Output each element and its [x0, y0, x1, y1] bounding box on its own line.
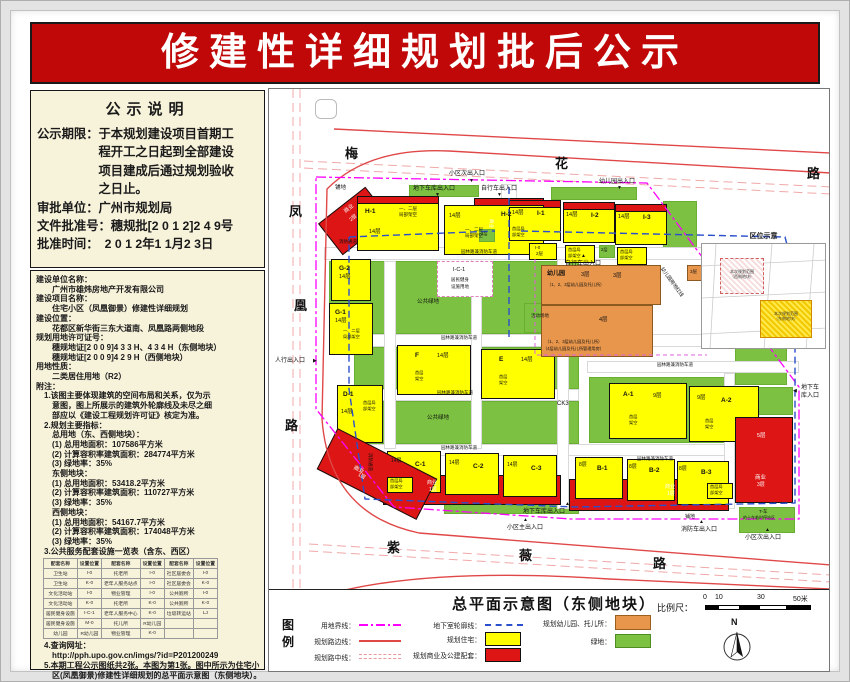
map-label: 公共绿地 — [417, 299, 439, 305]
map-shape-green — [663, 201, 697, 253]
text-line: (2) 计算容积率建筑面积：174048平方米 — [36, 527, 259, 537]
inset-title: 区位示意 — [701, 231, 826, 241]
map-label: F — [415, 352, 419, 359]
legend-item-road-center: 规划路中线： — [287, 648, 401, 662]
map-label: 4层 — [599, 317, 608, 323]
compass-north-label: N — [731, 617, 738, 627]
map-label: 14层 — [437, 353, 449, 359]
text-line: (2) 计算容积率建筑面积：110727平方米 — [36, 488, 259, 498]
green-swatch — [615, 634, 651, 648]
text-line: (3) 绿地率：35% — [36, 498, 259, 508]
map-label: 铺地 — [335, 185, 346, 191]
map-label: 3层 — [581, 272, 590, 278]
facility-col-header: 设置位置 — [77, 559, 101, 569]
map-label: 首层局 — [363, 401, 376, 406]
map-label: 2层 — [601, 248, 608, 253]
map-label: 14层 — [341, 409, 353, 415]
map-label: B-2 — [649, 467, 659, 474]
map-label: E — [499, 356, 503, 363]
facility-col-header: 配套名称 — [164, 559, 193, 569]
map-label: 9层 — [653, 393, 662, 399]
legend-item-basement: 地下室轮廓线： — [387, 616, 523, 630]
commercial-se — [735, 417, 793, 503]
map-label: 地下车库出入口 — [523, 509, 565, 516]
text-line: 程开工之日起到全部建设 — [37, 143, 258, 161]
map-label: 14层 — [566, 212, 578, 218]
map-label: 园林路兼消防车道 — [437, 390, 473, 395]
inset-parcel-west: 本次规划范围 （西侧地块） — [720, 258, 764, 294]
map-label: ▼ — [497, 193, 502, 199]
road-centerline — [309, 551, 830, 582]
scale-tick: 50米 — [793, 594, 808, 604]
facility-row: 卫生站K-0老年人服务站点I-0社区居委会K-0 — [44, 579, 218, 589]
map-label: ▲ — [699, 520, 704, 526]
text-line: 3.公共服务配套设施一览表（含东、西区） — [36, 547, 259, 557]
map-label: ▼ — [469, 179, 474, 185]
facility-col-header: 设置位置 — [140, 559, 164, 569]
text-line: http://pph.upo.gov.cn/imgs/?id=P20120024… — [36, 651, 259, 661]
map-label: 首层 — [629, 415, 637, 420]
map-label: 一、二层 — [399, 206, 417, 211]
map-shape-path — [384, 261, 396, 449]
map-label: I-2 — [591, 212, 599, 219]
text-line: 用地性质： — [36, 362, 259, 372]
text-line: 之日止。 — [37, 180, 258, 198]
road-fenghuang: 凤 — [289, 205, 302, 220]
map-label: 14层 — [449, 213, 461, 219]
map-label: ▼ — [617, 186, 622, 192]
map-label: 的士车临时停站区 — [743, 516, 775, 520]
map-label: I-1 — [537, 210, 545, 217]
text-line: 项目建成后通过规划验收 — [37, 162, 258, 180]
commercial-swatch — [485, 648, 521, 662]
map-label: 14层 — [521, 357, 533, 363]
text-line: 批准时间： 2 0 1 2年1 1月2 3日 — [37, 235, 258, 253]
road-meihua: 花 — [555, 157, 568, 172]
facility-table: 配套名称设置位置配套名称设置位置配套名称设置位置卫生站I-0托老所I-0社区居委… — [43, 558, 218, 639]
map-canvas: 梅花路凤凰路紫薇路小区次出入口▼地下车库出入口▼自行车出入口▼幼儿园出入口▼铺地… — [269, 89, 830, 589]
compass-icon — [719, 627, 755, 667]
text-line: 公示期限：于本规划建设项目首期工 — [37, 125, 258, 143]
map-label: 14层 — [335, 318, 347, 324]
map-label: 小区次出入口 — [745, 535, 781, 542]
map-label: 5层 — [757, 433, 766, 439]
map-label: 架空 — [499, 381, 507, 386]
text-line: 附注： — [36, 382, 259, 392]
map-label: 架空 — [415, 377, 423, 382]
map-label: ▲ — [523, 518, 528, 524]
map-label: 9层 — [697, 395, 706, 401]
building-A1 — [609, 383, 687, 439]
text-line: (2) 计算容积率建筑面积：284774平方米 — [36, 450, 259, 460]
legend-item-site-boundary: 用地界线： — [287, 616, 401, 630]
map-label: 首层 — [415, 371, 423, 376]
map-label: ◀ — [793, 389, 797, 395]
map-label: 首层局 — [620, 250, 633, 255]
map-label: ▶ — [313, 359, 317, 365]
map-label: 小区次出入口 — [449, 171, 485, 178]
map-label: 自行车出入口 — [565, 261, 601, 268]
map-label: B-1 — [597, 465, 607, 472]
text-line: 总用地（东、西侧地块）： — [36, 430, 259, 440]
text-line: 广州市雄炜房地产开发有限公司 — [36, 285, 259, 295]
road-edge-line — [329, 575, 830, 589]
building-F — [397, 345, 471, 395]
info-lines-after-table: 4.查询网址： http://pph.upo.gov.cn/imgs/?id=P… — [31, 641, 264, 680]
map-label: 一、二层 — [343, 329, 360, 334]
map-label: CK3 — [557, 401, 569, 408]
text-line: 区(凤凰御景)修建性详细规划的总平面示意图（东侧地块）。 — [36, 671, 259, 681]
info-panel: 建设单位名称： 广州市雄炜房地产开发有限公司建设项目名称： 住宅小区（凤凰御景）… — [30, 270, 265, 670]
inset-parcel-east: 本次规划范围 （东侧地块） — [760, 300, 812, 338]
facility-col-header: 设置位置 — [193, 559, 217, 569]
page-title: 修建性详细规划批后公示 — [30, 22, 820, 84]
text-line: 东侧地块： — [36, 469, 259, 479]
map-label: 14层 — [391, 459, 402, 465]
map-label: 园林路兼消防车道 — [637, 456, 673, 461]
map-label: 公共绿地 — [427, 415, 449, 421]
scale-tick: 10 — [715, 594, 723, 601]
legend-item-residential: 规划住宅： — [387, 630, 521, 644]
road-ziwei: 路 — [653, 557, 666, 572]
map-label: 园林路兼消防车道 — [441, 445, 477, 450]
text-line: 建设单位名称： — [36, 275, 259, 285]
road-fenghuang: 凰 — [294, 299, 307, 314]
text-line: 西侧地块： — [36, 508, 259, 518]
map-label: 地下车 — [801, 385, 819, 392]
map-label: 商业 — [665, 485, 675, 491]
text-line: 建设位置： — [36, 314, 259, 324]
map-label: 局部架空 — [399, 212, 417, 217]
map-label: 部架空 — [512, 233, 525, 238]
map-label: 14层 — [618, 214, 630, 220]
map-label: ▲ — [765, 528, 770, 534]
map-label: 首层局 — [390, 479, 403, 484]
legend-item-commercial: 规划商业及公建配套： — [387, 646, 521, 660]
text-line: 意图，图上所展示的建筑外轮廓线及未尽之细 — [36, 401, 259, 411]
legend-item-kindergarten: 规划幼儿园、托儿所： — [513, 614, 651, 628]
map-label: 人行出入口 — [275, 358, 305, 365]
text-line: 二类居住用地（R2） — [36, 372, 259, 382]
map-label: 商业 — [755, 475, 766, 481]
scale-tick: 30 — [757, 594, 765, 601]
legend-item-green: 绿地： — [513, 632, 651, 646]
facility-row: 文化活动站I-0物业管理I-0公共厕所I-0 — [44, 589, 218, 599]
map-label: B-3 — [701, 469, 711, 476]
notice-panel: 公示说明 公示期限：于本规划建设项目首期工 程开工之日起到全部建设 项目建成后通… — [30, 90, 265, 268]
road-edge-line — [334, 129, 830, 153]
text-line: 住宅小区（凤凰御景）修建性详细规划 — [36, 304, 259, 314]
map-label: 8层 — [679, 467, 687, 473]
map-label: 活动场地 — [531, 313, 549, 318]
map-label: D-1 — [343, 391, 353, 398]
map-label: （1、2、3层幼儿园及托儿所） — [545, 340, 602, 345]
map-label: 首层 — [499, 375, 507, 380]
map-label: 8层 — [579, 463, 587, 469]
facility-row: 文化活动站K-0托老所K-0公共厕所K-0 — [44, 599, 218, 609]
text-line: 文件批准号：穗规批[2 0 1 2]2 4 9号 — [37, 217, 258, 235]
map-label: 1层 — [429, 488, 437, 494]
map-label: 园林路兼消防车道 — [657, 362, 693, 367]
map-label: 架空 — [705, 425, 713, 430]
map-label: 幼儿园用地红线 — [658, 267, 683, 299]
text-line: (3) 绿地率：35% — [36, 537, 259, 547]
map-label: 地下车库出入口 — [413, 186, 455, 193]
map-label: 消防通道 — [368, 453, 373, 471]
facility-row: 居民健身设施I-C-1老年人服务中心K-0垃圾转运站LJ — [44, 609, 218, 619]
facility-row: 卫生站I-0托老所I-0社区居委会I-0 — [44, 569, 218, 579]
road-island — [315, 99, 337, 119]
map-label: 3层 — [690, 269, 697, 274]
map-label: 首层局 — [568, 248, 581, 253]
road-meihua: 梅 — [345, 147, 358, 162]
map-label: 3层 — [757, 483, 765, 489]
map-label: C-1 — [415, 461, 425, 468]
text-line: 2.规划主要指标： — [36, 421, 259, 431]
map-label: 架空 — [629, 421, 637, 426]
map-label: 部架空 — [568, 254, 581, 259]
map-label: I-3 — [643, 214, 651, 221]
map-label: 部架空 — [710, 491, 723, 496]
text-line: 建设项目名称： — [36, 294, 259, 304]
map-shape-path — [587, 361, 799, 373]
map-label: H-1 — [365, 208, 375, 215]
text-line: (1) 总用地面积：53418.2平方米 — [36, 479, 259, 489]
map-label: 部架空 — [390, 485, 403, 490]
map-label: 14层 — [507, 463, 518, 469]
map-label: 首层 — [705, 419, 713, 424]
map-label: 部架空 — [363, 407, 376, 412]
scale-bar — [705, 605, 811, 610]
map-label: 库入口 — [801, 393, 819, 400]
map-label: C-3 — [531, 465, 541, 472]
map-shape-green — [551, 187, 637, 200]
map-label: I-0 — [535, 245, 540, 250]
map-label: 2层 — [481, 232, 488, 237]
text-line: 穗规地证[2 0 0 9]4 2 9 H（西侧地块） — [36, 353, 259, 363]
text-line: 规划用地许可证号： — [36, 333, 259, 343]
text-line: 部应以《建设工程规划许可证》核定为准。 — [36, 411, 259, 421]
legend-band: 总平面示意图（东侧地块） 图例 用地界线： 规划路边线： 规划路中线： 地下室轮… — [269, 589, 830, 672]
kindergarten-swatch — [615, 615, 651, 630]
map-label: （4层幼儿园及托儿所管理用房） — [543, 347, 604, 352]
road-ziwei: 薇 — [519, 549, 532, 564]
map-label: ▼ — [435, 193, 440, 199]
map-label: 首层局 — [512, 227, 525, 232]
map-label: 首层局 — [710, 485, 723, 490]
map-label: 14层 — [449, 461, 460, 467]
notice-panel-title: 公示说明 — [31, 98, 264, 119]
map-label: 2层 — [536, 251, 543, 256]
map-label: 幼儿园 — [547, 271, 565, 278]
map-label: 园林路兼消防车道 — [461, 249, 497, 254]
text-line: 审批单位：广州市规划局 — [37, 199, 258, 217]
road-meihua: 路 — [807, 167, 820, 182]
map-shape-green — [755, 387, 793, 415]
inset-box: 本次规划范围 （西侧地块） 本次规划范围 （东侧地块） — [701, 243, 826, 349]
map-label: I-C-1 — [453, 267, 465, 273]
map-label: 8层 — [629, 465, 637, 471]
map-label: 1层 — [667, 492, 675, 498]
notice-lines: 公示期限：于本规划建设项目首期工 程开工之日起到全部建设 项目建成后通过规划验收… — [31, 125, 264, 254]
inset-west-label: （西侧地块） — [721, 274, 763, 279]
map-label: T-车 — [759, 509, 768, 514]
map-label: 居民健身 — [451, 277, 469, 282]
text-line: (3) 绿地率：35% — [36, 459, 259, 469]
text-line: 穗规地证[2 0 0 9]4 3 3 H、4 3 4 H（东侧地块） — [36, 343, 259, 353]
scale-bar-label: 比例尺： — [657, 601, 693, 614]
map-label: 园林路兼消防车道 — [441, 335, 477, 340]
facility-col-header: 配套名称 — [44, 559, 78, 569]
map-label: （1、2、3层幼儿园及托儿所） — [547, 283, 604, 288]
map-label: 部架空 — [620, 256, 633, 261]
info-lines-before-table: 建设单位名称： 广州市雄炜房地产开发有限公司建设项目名称： 住宅小区（凤凰御景）… — [31, 271, 264, 556]
inset-east-label: （东侧地块） — [761, 316, 811, 321]
map-label: 商业 — [489, 219, 494, 228]
building-G2 — [331, 259, 371, 301]
map-label: 3层 — [613, 273, 622, 279]
text-line: 4.查询网址： — [36, 641, 259, 651]
map-label: ▲ — [565, 502, 570, 508]
map-label: 14层 — [369, 229, 381, 235]
map-label: 铺地 — [685, 515, 695, 521]
text-line: 1.该图主要体现建筑的空间布局和关系，仅为示 — [36, 391, 259, 401]
map-label: 商业 — [427, 481, 437, 487]
map-label: G-1 — [335, 309, 346, 316]
map-label: ▲ — [581, 254, 586, 260]
legend-item-road-edge: 规划路边线： — [287, 632, 401, 646]
facility-row: 居民健身设施M-0托儿所R幼儿园 — [44, 619, 218, 629]
map-label: 设施用地 — [451, 284, 469, 289]
map-label: G-2 — [339, 265, 350, 272]
map-label: 小区主出入口 — [507, 525, 543, 532]
scale-tick: 0 — [703, 594, 707, 601]
site-plan-map: 梅花路凤凰路紫薇路小区次出入口▼地下车库出入口▼自行车出入口▼幼儿园出入口▼铺地… — [268, 88, 830, 672]
map-label: 局部架空 — [343, 335, 360, 340]
location-inset: 区位示意 本次规划范围 （西侧地块） 本次规划范围 （东侧地块） — [701, 231, 826, 351]
map-label: 消防通道 — [339, 239, 357, 244]
text-line: 5.本期工程公示图纸共2张。本图为第1张。图中所示为住宅小 — [36, 661, 259, 671]
map-label: 14层 — [512, 210, 524, 216]
text-line: (1) 总用地面积：107586平方米 — [36, 440, 259, 450]
road-ziwei: 紫 — [387, 541, 400, 556]
text-line: 花都区新华街三东大道南、凤凰路两侧地段 — [36, 324, 259, 334]
map-label: 14层 — [339, 274, 351, 280]
facility-row: 幼儿园R幼儿园物业管理K-0 — [44, 629, 218, 639]
map-label: C-2 — [473, 463, 483, 470]
facility-col-header: 配套名称 — [102, 559, 141, 569]
map-label: A-1 — [623, 391, 633, 398]
map-label: H-2 — [501, 211, 511, 218]
map-label: 消防车出入口 — [681, 527, 717, 534]
road-fenghuang: 路 — [285, 419, 298, 434]
text-line: (1) 总用地面积：54167.7平方米 — [36, 518, 259, 528]
map-label: A-2 — [721, 397, 731, 404]
